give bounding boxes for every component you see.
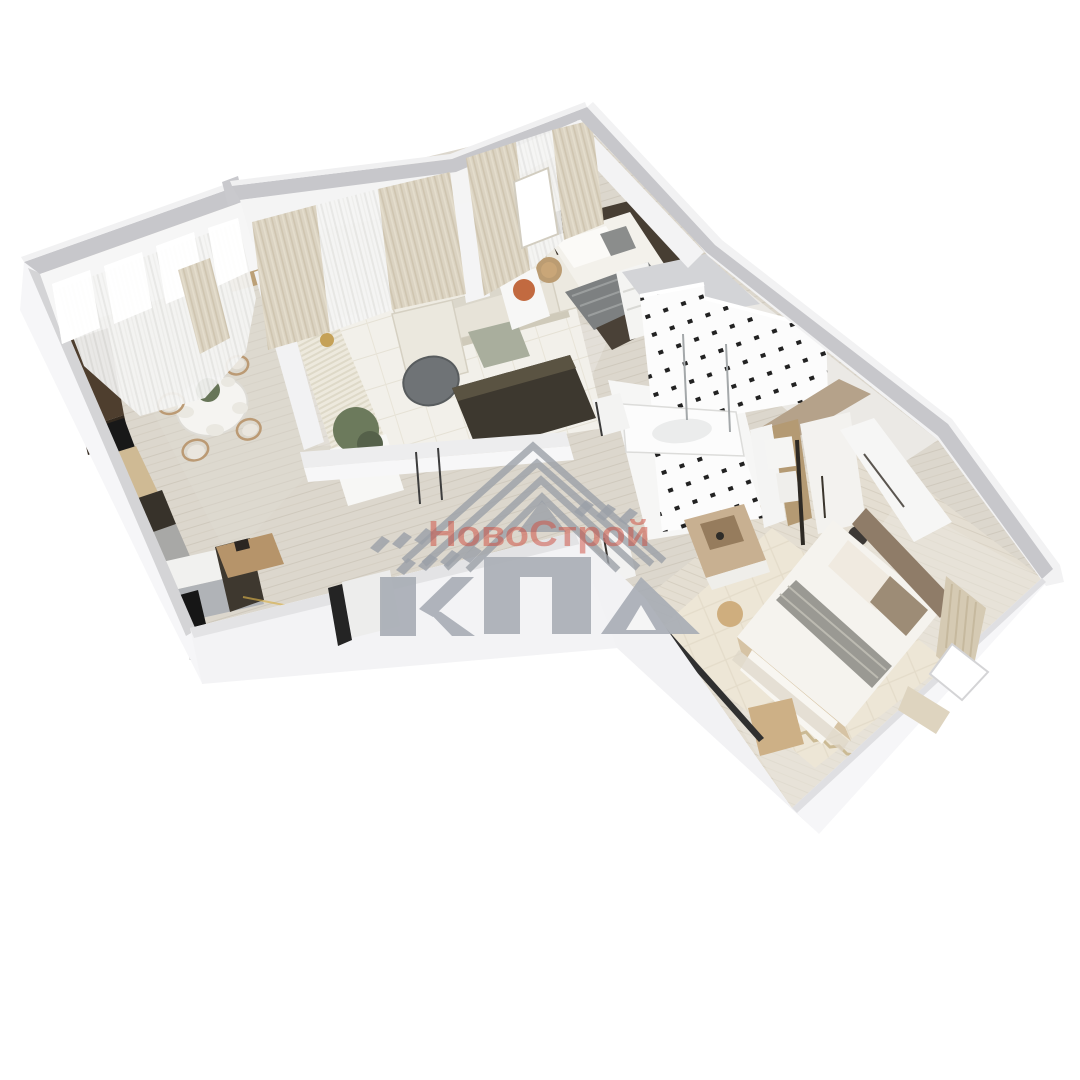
- svg-text:НовоСтрой: НовоСтрой: [428, 513, 650, 554]
